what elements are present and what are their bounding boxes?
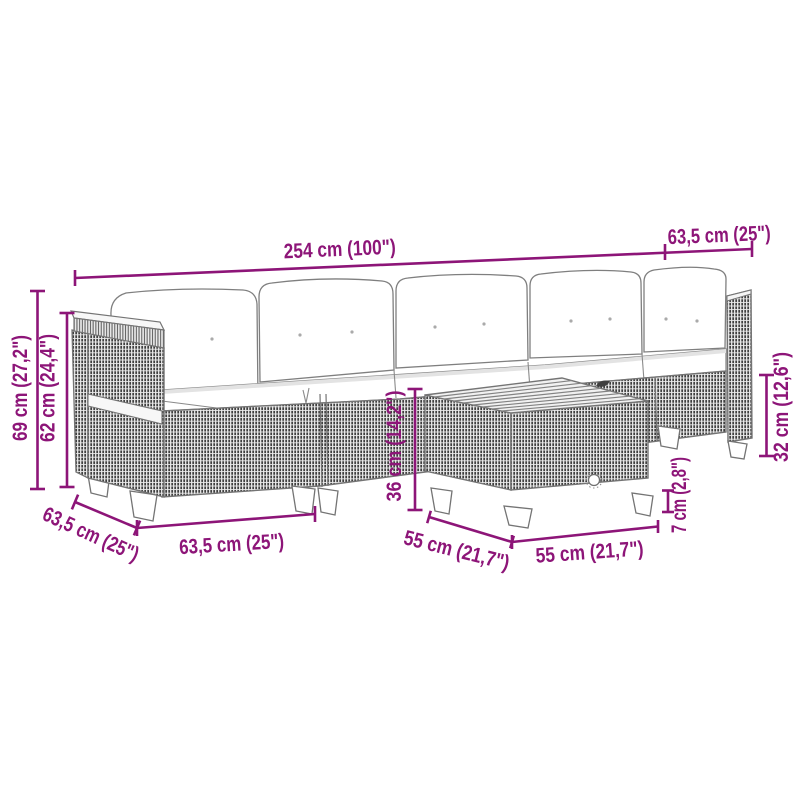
svg-text:63,5 cm (25"): 63,5 cm (25"): [667, 222, 771, 249]
svg-text:63,5 cm (25"): 63,5 cm (25"): [39, 503, 142, 567]
svg-text:55 cm (21,7"): 55 cm (21,7"): [401, 526, 511, 574]
svg-text:36 cm (14,2"): 36 cm (14,2"): [383, 391, 406, 502]
svg-text:32 cm (12,6"): 32 cm (12,6"): [770, 352, 793, 462]
svg-text:69 cm (27,2"): 69 cm (27,2"): [9, 335, 32, 441]
svg-text:55 cm (21,7"): 55 cm (21,7"): [535, 537, 644, 567]
svg-text:254 cm (100"): 254 cm (100"): [283, 236, 396, 264]
svg-text:62 cm (24,4"): 62 cm (24,4"): [37, 334, 60, 442]
svg-text:63,5 cm (25"): 63,5 cm (25"): [178, 530, 284, 559]
svg-text:7 cm (2,8"): 7 cm (2,8"): [668, 457, 691, 533]
